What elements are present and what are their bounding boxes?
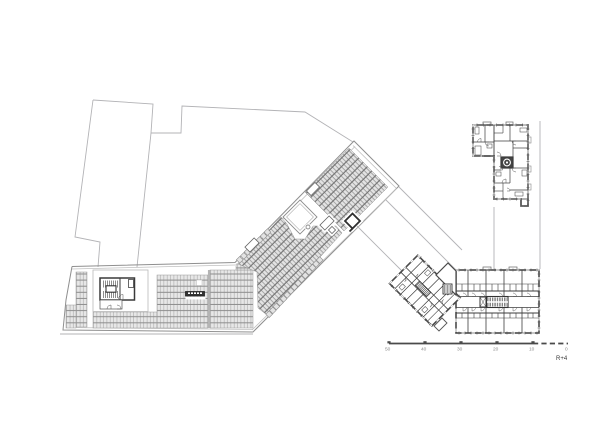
svg-text:50: 50 — [385, 347, 391, 353]
svg-text:20: 20 — [493, 347, 499, 353]
svg-text:30: 30 — [457, 347, 463, 353]
svg-text:40: 40 — [421, 347, 427, 353]
svg-text:0: 0 — [565, 347, 568, 353]
svg-text:R+4: R+4 — [556, 356, 568, 362]
svg-text:10: 10 — [529, 347, 535, 353]
